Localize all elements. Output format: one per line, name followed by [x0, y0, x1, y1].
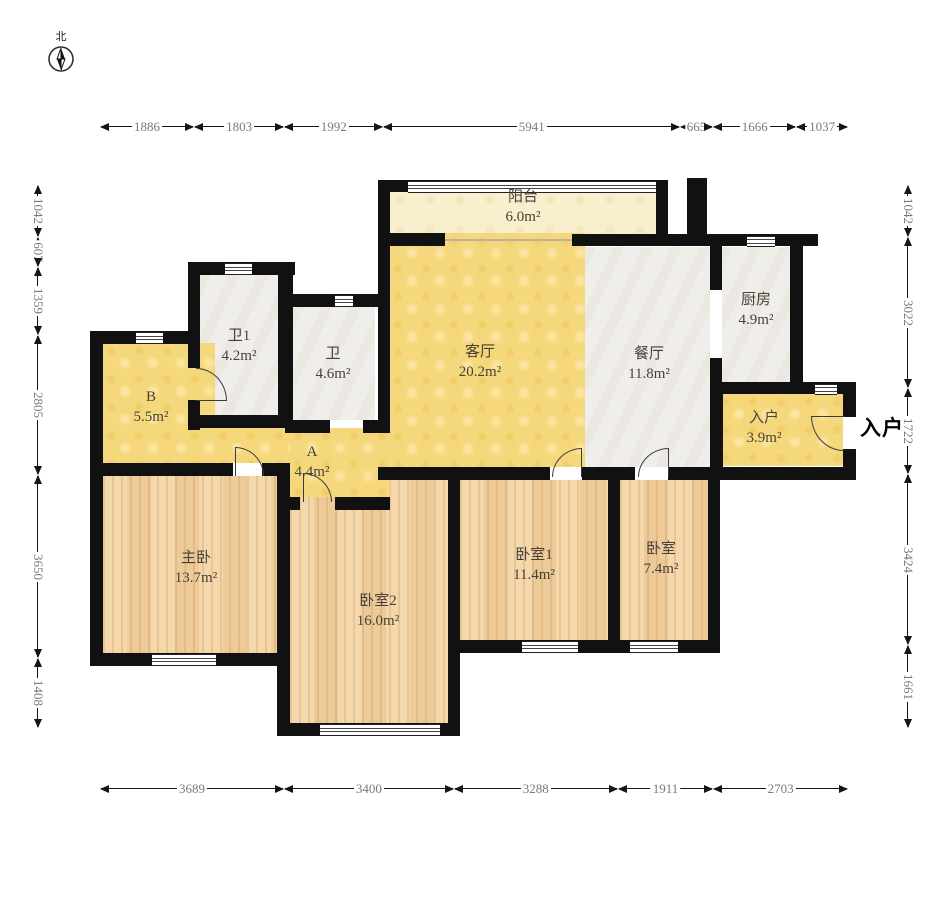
dimension-segment: 3689 [100, 782, 284, 796]
wall [708, 467, 720, 653]
dimension-segment: 607 [31, 237, 45, 267]
wall [90, 463, 233, 476]
window [225, 263, 252, 275]
room-label-bath1: 卫14.2m² [222, 326, 257, 367]
room-label-bath: 卫4.6m² [316, 344, 351, 385]
balcony-threshold [445, 239, 572, 241]
dimension-segment: 2703 [713, 782, 848, 796]
window [815, 384, 837, 395]
window [747, 236, 775, 247]
room-label-master: 主卧13.7m² [175, 548, 217, 589]
dimension-segment: 3400 [284, 782, 454, 796]
dimension-segment: 1666 [713, 120, 796, 134]
wall [656, 180, 668, 238]
room-label-kitchen: 厨房4.9m² [739, 290, 774, 331]
window [152, 654, 216, 666]
wall [378, 233, 390, 433]
wall [843, 382, 856, 417]
dimension-segment: 1037 [796, 120, 848, 134]
dimension-segment: 3424 [901, 474, 915, 645]
dimension-chain-top: 1886 1803 1992 5941 665 1666 1037 [100, 120, 848, 134]
entry-marker: 入户 [860, 412, 904, 442]
room-floor-corridorA [103, 428, 215, 467]
wall [710, 382, 723, 478]
room-label-bed3: 卧室7.4m² [644, 539, 679, 580]
dimension-segment: 1803 [194, 120, 284, 134]
window [522, 641, 578, 653]
dimension-segment: 2805 [31, 335, 45, 475]
dimension-segment: 3650 [31, 475, 45, 657]
floor-plan: 北 [0, 0, 949, 916]
dimension-segment: 3288 [454, 782, 618, 796]
wall [448, 467, 460, 736]
dimension-chain-left: 1042 607 1359 2805 3650 1408 [31, 185, 45, 728]
wall [790, 235, 803, 382]
wall [608, 467, 620, 653]
wall [335, 497, 390, 510]
dimension-segment: 3022 [901, 237, 915, 388]
dimension-segment: 5941 [383, 120, 679, 134]
window [136, 332, 163, 344]
room-label-entry: 入户3.9m² [747, 408, 782, 449]
compass-needle-icon [47, 45, 75, 73]
dimension-segment: 1359 [31, 267, 45, 335]
room-label-balcony: 阳台6.0m² [506, 187, 541, 228]
dimension-segment: 1042 [31, 185, 45, 237]
window [630, 641, 678, 653]
dimension-segment: 1992 [284, 120, 383, 134]
dimension-segment: 1408 [31, 658, 45, 728]
compass-icon: 北 [44, 28, 78, 78]
dimension-segment: 1042 [901, 185, 915, 237]
wall [378, 467, 550, 480]
wall [710, 235, 722, 290]
compass-north-label: 北 [44, 28, 78, 44]
window [335, 295, 353, 307]
dimension-segment: 1886 [100, 120, 194, 134]
wall [285, 420, 330, 433]
dimension-segment: 665 [680, 120, 713, 134]
wall [277, 463, 290, 723]
room-label-roomB: B5.5m² [134, 387, 169, 428]
wall [188, 262, 200, 368]
room-label-bed2: 卧室216.0m² [357, 591, 399, 632]
wall [572, 234, 818, 246]
dimension-segment: 1911 [618, 782, 713, 796]
wall [668, 467, 856, 480]
room-label-bed1: 卧室111.4m² [513, 545, 555, 586]
dimension-chain-right: 1042 3022 1722 3424 1661 [901, 185, 915, 728]
window [320, 724, 440, 736]
room-label-living: 客厅20.2m² [459, 342, 501, 383]
wall [278, 262, 293, 428]
dimension-segment: 1661 [901, 645, 915, 728]
room-label-dining: 餐厅11.8m² [628, 344, 670, 385]
wall [90, 331, 103, 665]
dimension-chain-bottom: 3689 3400 3288 1911 2703 [100, 782, 848, 796]
wall [188, 415, 290, 428]
